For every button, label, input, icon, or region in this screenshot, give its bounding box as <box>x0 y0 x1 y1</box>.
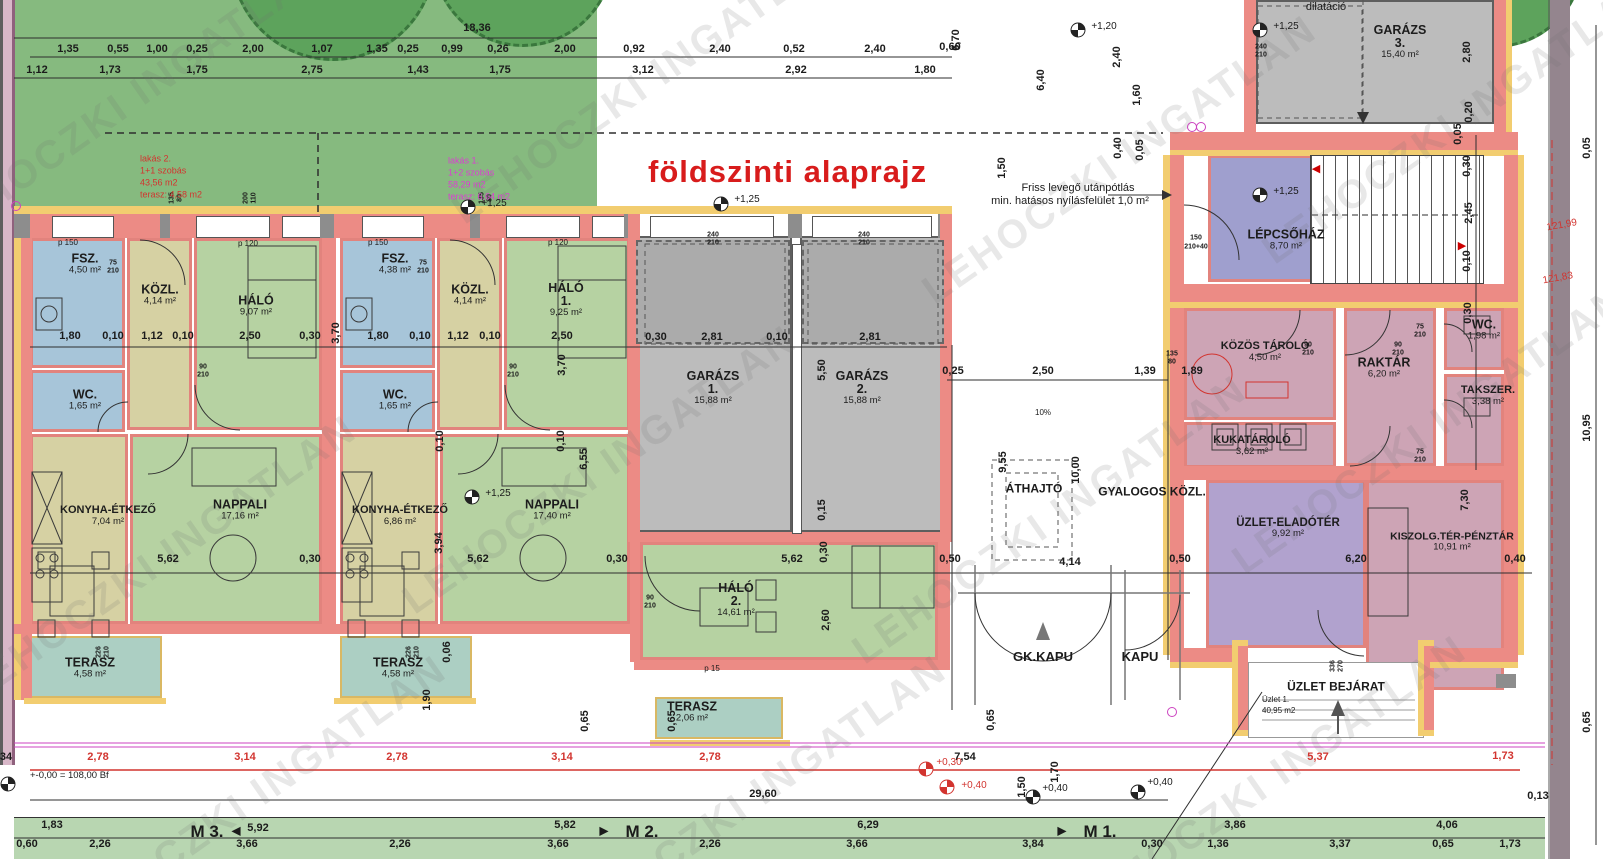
dimension-text: 1,75 <box>186 65 207 77</box>
annotation: p 120 <box>548 239 568 247</box>
dimension-text: 0,10 <box>102 331 123 343</box>
dimension-lines <box>14 0 1596 859</box>
elevation-mark-icon <box>919 762 934 777</box>
dimension-text: 3,12 <box>632 65 653 77</box>
dimension-text: 226 <box>405 646 412 658</box>
annotation: lakás 1. <box>448 156 479 165</box>
dimension-text: 0,30 <box>299 554 320 566</box>
room-label-konyha-1: KONYHA-ÉTKEZŐ7,04 m² <box>60 505 156 527</box>
dimension-text: 5,92 <box>247 823 268 835</box>
room-label-halo-1: HÁLÓ9,07 m² <box>238 294 273 317</box>
dimension-text: 210 <box>1414 331 1426 338</box>
dimension-text: 90 <box>1304 341 1312 348</box>
room-label-garazs-1: GARÁZS1.15,88 m² <box>687 370 740 406</box>
room-label-raktar: RAKTÁR6,20 m² <box>1358 356 1411 379</box>
room-label-kozl-2: KÖZL.4,14 m² <box>451 283 489 306</box>
annotation: GYALOGOS KÖZL. <box>1098 486 1206 499</box>
room-label-kozos-tarolo: KÖZÖS TÁROLÓ4,50 m² <box>1221 341 1310 363</box>
annotation: 10% <box>1035 409 1051 417</box>
dimension-text: 2,50 <box>551 331 572 343</box>
dimension-text: 1,75 <box>489 65 510 77</box>
room-label-halo-2-2: HÁLÓ2.14,61 m² <box>717 582 755 618</box>
dimension-text: 2,75 <box>301 65 322 77</box>
annotation: +1,25 <box>485 489 510 500</box>
dimension-text: 3,37 <box>1329 839 1350 851</box>
dimension-text: 1,36 <box>1207 839 1228 851</box>
dimension-text: 1,73 <box>1499 839 1520 851</box>
dimension-text: 0,25 <box>397 44 418 56</box>
dimension-text: 0,60 <box>16 839 37 851</box>
annotation: p 150 <box>58 239 78 247</box>
dimension-text: 210 <box>858 239 870 246</box>
dimension-text: 1,12 <box>26 65 47 77</box>
dimension-text: 2,81 <box>859 332 880 344</box>
annotation: M 2. <box>625 823 658 841</box>
dimension-text: 0,10 <box>409 331 430 343</box>
dimension-text: 2,45 <box>1464 202 1476 223</box>
dimension-text: 90 <box>646 594 654 601</box>
dimension-text: 0,06 <box>442 641 454 662</box>
elevation-mark-icon <box>714 197 729 212</box>
dimension-text: 0,13 <box>1527 791 1548 803</box>
dimension-text: 210 <box>107 267 119 274</box>
dimension-text: 75 <box>1416 448 1424 455</box>
dimension-text: 210 <box>1392 349 1404 356</box>
dimension-text: 2,78 <box>87 752 108 764</box>
dimension-text: 1,35 <box>57 44 78 56</box>
dimension-text: 3,66 <box>236 839 257 851</box>
dimension-text: 3,84 <box>1022 839 1043 851</box>
dimension-text: 0,10 <box>479 331 500 343</box>
dimension-text: 210 <box>1414 456 1426 463</box>
annotation: ÁTHAJTÓ <box>1006 483 1063 496</box>
dimension-text: 5,37 <box>1307 752 1328 764</box>
annotation: ◀ <box>231 825 240 838</box>
annotation: +0,40 <box>1042 784 1067 795</box>
dimension-text: 2,40 <box>864 44 885 56</box>
dimension-text: 0,05 <box>1453 123 1465 144</box>
elevation-mark-icon <box>1253 23 1268 38</box>
dimension-text: 0,65 <box>1432 839 1453 851</box>
dimension-text: 210 <box>707 239 719 246</box>
dimension-text: 6,70 <box>951 29 963 50</box>
dimension-text: 0,05 <box>1582 137 1594 158</box>
dimension-text: 2,00 <box>554 44 575 56</box>
annotation: KAPU <box>1122 650 1159 664</box>
room-label-nappali-1: NAPPALI17,16 m² <box>213 498 267 521</box>
dimension-text: 1,89 <box>1181 366 1202 378</box>
dimension-text: 1,39 <box>1134 366 1155 378</box>
dimension-text: 210 <box>1302 349 1314 356</box>
dimension-text: 5,50 <box>817 359 829 380</box>
room-label-fsz-2: FSZ.4,38 m² <box>379 252 411 275</box>
dimension-text: 75 <box>1416 323 1424 330</box>
floorplan-sheet: földszinti alaprajz FSZ.4,50 m²KÖZL.4,14… <box>0 0 1603 859</box>
dimension-text: 336 <box>1329 660 1336 672</box>
room-label-kozl-1: KÖZL.4,14 m² <box>141 283 179 306</box>
dimension-text: 240 <box>1255 43 1267 50</box>
elevation-mark-icon <box>461 200 476 215</box>
dimension-text: 0,40 <box>1504 554 1525 566</box>
dimension-text: 3,70 <box>331 322 343 343</box>
room-label-nappali-2: NAPPALI17,40 m² <box>525 498 579 521</box>
dimension-text: 0,05 <box>1135 139 1147 160</box>
utility-point-icon <box>11 201 21 211</box>
annotation: ▶ <box>1458 241 1466 253</box>
room-label-fsz-1: FSZ.4,50 m² <box>69 252 101 275</box>
dimension-text: 6,40 <box>1036 69 1048 90</box>
dimension-text: 9,55 <box>998 451 1010 472</box>
dimension-text: 200 <box>242 192 249 204</box>
linework-layer <box>0 0 1603 859</box>
room-label-garazs-3: GARÁZS3.15,40 m² <box>1374 24 1427 60</box>
dimension-text: 0,65 <box>580 710 592 731</box>
dimension-text: 1,43 <box>407 65 428 77</box>
dimension-text: 0,20 <box>1464 101 1476 122</box>
dimension-text: 210 <box>413 646 420 658</box>
dimension-text: 1,12 <box>141 331 162 343</box>
annotation: 58,29 m2 <box>448 180 486 189</box>
dimension-text: 270 <box>1337 660 1344 672</box>
dimension-text: 5,62 <box>467 554 488 566</box>
dimension-text: 0,15 <box>817 499 829 520</box>
annotation: ÜZLET BEJÁRAT <box>1287 681 1385 694</box>
annotation: 43,56 m2 <box>140 178 178 187</box>
dimension-text: 0,10 <box>1462 250 1474 271</box>
dimension-text: 240 <box>858 231 870 238</box>
dimension-text: 240 <box>707 231 719 238</box>
dimension-text: 10,95 <box>1582 414 1594 442</box>
dimension-text: 1,70 <box>1050 761 1062 782</box>
dimension-text: 0,30 <box>1463 302 1475 323</box>
dashed-outlines <box>645 0 1363 560</box>
annotation: lakás 2. <box>140 154 171 163</box>
annotation: +0,30 <box>936 758 961 769</box>
dimension-text: 0,25 <box>186 44 207 56</box>
dimension-text: 1,35 <box>366 44 387 56</box>
annotation: +1,25 <box>1273 187 1298 198</box>
dimension-text: 6,55 <box>579 448 591 469</box>
annotation: GK.KAPU <box>1013 650 1073 664</box>
dimension-text: 0,10 <box>172 331 193 343</box>
dimension-text: 2,50 <box>1032 366 1053 378</box>
dimension-text: 5,62 <box>781 554 802 566</box>
door-swings <box>98 205 1472 661</box>
dimension-text: 2,81 <box>701 332 722 344</box>
dimension-text: 0,30 <box>819 541 831 562</box>
dimension-text: 5,62 <box>157 554 178 566</box>
dimension-text: 75 <box>419 259 427 266</box>
dimension-text: 0,30 <box>1141 839 1162 851</box>
room-label-takszer: TAKSZER.3,38 m² <box>1461 385 1515 407</box>
room-label-konyha-2: KONYHA-ÉTKEZŐ6,86 m² <box>352 505 448 527</box>
annotation: +0,40 <box>1147 778 1172 789</box>
dimension-text: 210 <box>644 602 656 609</box>
dimension-text: 210 <box>417 267 429 274</box>
annotation: +1,25 <box>1273 22 1298 33</box>
room-label-kukatarolo: KUKATÁROLÓ3,62 m² <box>1213 435 1290 457</box>
annotation: 1+1 szobás <box>140 166 186 175</box>
dimension-text: 1,73 <box>1492 751 1513 763</box>
dimension-text: 1,12 <box>447 331 468 343</box>
room-label-lepcsohaz: LÉPCSŐHÁZ8,70 m² <box>1247 228 1324 251</box>
dimension-text: 75 <box>109 259 117 266</box>
annotation: M 1. <box>1083 823 1116 841</box>
dimension-text: 0,55 <box>107 44 128 56</box>
gate-posts <box>958 565 1190 705</box>
dimension-text: 2,78 <box>699 752 720 764</box>
dimension-text: 3,66 <box>547 839 568 851</box>
dimension-text: 1,00 <box>146 44 167 56</box>
dimension-text: 0,10 <box>766 332 787 344</box>
annotation: +1,25 <box>481 199 506 210</box>
dimension-text: 2,40 <box>709 44 730 56</box>
dimension-text: 1,50 <box>997 157 1009 178</box>
dimension-text: 6,29 <box>857 820 878 832</box>
dimension-text: 1,07 <box>311 44 332 56</box>
annotation: +-0,00 = 108,00 Bf <box>30 771 109 781</box>
room-label-garazs-2: GARÁZS2.15,88 m² <box>836 370 889 406</box>
dimension-text: 0,30 <box>645 332 666 344</box>
dimension-text: 0,30 <box>1462 155 1474 176</box>
dimension-text: 0,65 <box>1582 711 1594 732</box>
elevation-mark-icon <box>940 780 955 795</box>
dimension-text: 4,06 <box>1436 820 1457 832</box>
dimension-text: 0,50 <box>939 554 960 566</box>
dimension-text: 1,80 <box>914 65 935 77</box>
utility-lines <box>14 743 1545 747</box>
dimension-text: 3,86 <box>1224 820 1245 832</box>
elevation-mark-icon <box>1253 188 1268 203</box>
elevation-mark-icon <box>1026 790 1041 805</box>
dimension-text: 2,26 <box>389 839 410 851</box>
annotation: ▶ <box>599 825 608 838</box>
dimension-text: 4,14 <box>1059 557 1080 569</box>
dimension-text: 210 <box>103 646 110 658</box>
dimension-text: 150 <box>1190 234 1202 241</box>
elevation-mark-icon <box>1131 785 1146 800</box>
dimension-text: 3,14 <box>551 752 572 764</box>
dimension-text: 110 <box>250 192 257 203</box>
dimension-text: 0,10 <box>556 430 568 451</box>
dimension-text: 90 <box>1394 341 1402 348</box>
dimension-text: 0,92 <box>623 44 644 56</box>
dimension-text: 3,70 <box>557 354 569 375</box>
dimension-text: 3,94 <box>434 532 446 553</box>
dimension-text: 2,92 <box>785 65 806 77</box>
room-label-terasz-2: TERASZ4,58 m² <box>373 656 423 679</box>
dimension-text: 6,20 <box>1345 554 1366 566</box>
dimension-text: 226 <box>95 646 102 658</box>
dimension-text: 29,60 <box>749 789 777 801</box>
dimension-text: 1,80 <box>367 331 388 343</box>
dimension-text: 2,00 <box>242 44 263 56</box>
annotation: 40,95 m2 <box>1262 707 1295 715</box>
annotation: dilatáció <box>1306 2 1346 14</box>
dimension-text: 0,25 <box>942 366 963 378</box>
dimension-text: 5,82 <box>554 820 575 832</box>
dimension-text: 0,50 <box>1169 554 1190 566</box>
dimension-text: 0,65 <box>667 710 679 731</box>
dimension-text: 3,14 <box>234 752 255 764</box>
dimension-text: 0,30 <box>606 554 627 566</box>
dimension-text: 210 <box>1255 51 1267 58</box>
dimension-text: 2,40 <box>1112 46 1124 67</box>
dimension-text: 2,80 <box>1462 41 1474 62</box>
dimension-text: 0,65 <box>986 709 998 730</box>
utility-point-icon <box>1196 122 1206 132</box>
annotation: p 15 <box>704 665 720 673</box>
dimension-text: 0,40 <box>1113 137 1125 158</box>
dimension-text: 34 <box>0 752 12 764</box>
room-label-wc-1: WC.1,65 m² <box>69 388 101 411</box>
dimension-text: 210+40 <box>1184 243 1208 250</box>
dimension-text: 210 <box>197 371 209 378</box>
dimension-text: 1,60 <box>1132 84 1144 105</box>
room-label-terasz-1: TERASZ4,58 m² <box>65 656 115 679</box>
annotation: ◀ <box>1312 164 1320 176</box>
dimension-text: 135 <box>1166 350 1178 357</box>
room-label-wc-2: WC.1,65 m² <box>379 388 411 411</box>
annotation: p 150 <box>368 239 388 247</box>
annotation: M 3. <box>190 823 223 841</box>
annotation: Friss levegő utánpótlás <box>1021 183 1134 195</box>
elevation-mark-icon <box>1071 23 1086 38</box>
annotation: ▶ <box>1057 825 1066 838</box>
utility-point-icon <box>1167 707 1177 717</box>
room-label-halo-2-1: HÁLÓ1.9,25 m² <box>548 282 583 318</box>
dimension-text: 1,90 <box>422 689 434 710</box>
dimension-text: 0,26 <box>487 44 508 56</box>
room-label-uzlet-eladoter: ÜZLET-ELADÓTÉR9,92 m² <box>1236 517 1340 539</box>
annotation: 1+2 szobás <box>448 168 494 177</box>
dimension-text: 7,30 <box>1460 489 1472 510</box>
dimension-text: 0,52 <box>783 44 804 56</box>
dimension-text: 2,78 <box>386 752 407 764</box>
annotation: Üzlet 1. <box>1262 696 1289 704</box>
annotation: terasz: 4,58 m2 <box>140 190 202 199</box>
dimension-text: 10,00 <box>1071 456 1083 484</box>
dimension-text: 18,36 <box>463 23 491 35</box>
dimension-text: 90 <box>199 363 207 370</box>
annotation: +1,25 <box>734 195 759 206</box>
room-label-kiszolg-ter-penztar: KISZOLG.TÉR-PÉNZTÁR10,91 m² <box>1390 532 1514 553</box>
annotation: +1,20 <box>1091 22 1116 33</box>
dimension-text: 1,83 <box>41 820 62 832</box>
annotation: +0,40 <box>961 781 986 792</box>
dimension-text: 210 <box>507 371 519 378</box>
dimension-text: 2,60 <box>821 609 833 630</box>
annotation: p 120 <box>238 240 258 248</box>
dimension-text: 1,80 <box>59 331 80 343</box>
elevation-mark-icon <box>465 490 480 505</box>
dimension-text: 2,26 <box>89 839 110 851</box>
dimension-text: 2,26 <box>699 839 720 851</box>
page-title: földszinti alaprajz <box>648 156 927 189</box>
dimension-text: 0,10 <box>435 430 447 451</box>
elevation-mark-icon <box>1 777 16 792</box>
dimension-text: 0,99 <box>441 44 462 56</box>
dimension-text: 1,73 <box>99 65 120 77</box>
dimension-text: 90 <box>509 363 517 370</box>
dimension-text: 0,30 <box>299 331 320 343</box>
dimension-text: 80 <box>1168 358 1176 365</box>
annotation: min. hatásos nyílásfelület 1,0 m² <box>991 196 1149 208</box>
dimension-text: 3,66 <box>846 839 867 851</box>
dimension-text: 2,50 <box>239 331 260 343</box>
